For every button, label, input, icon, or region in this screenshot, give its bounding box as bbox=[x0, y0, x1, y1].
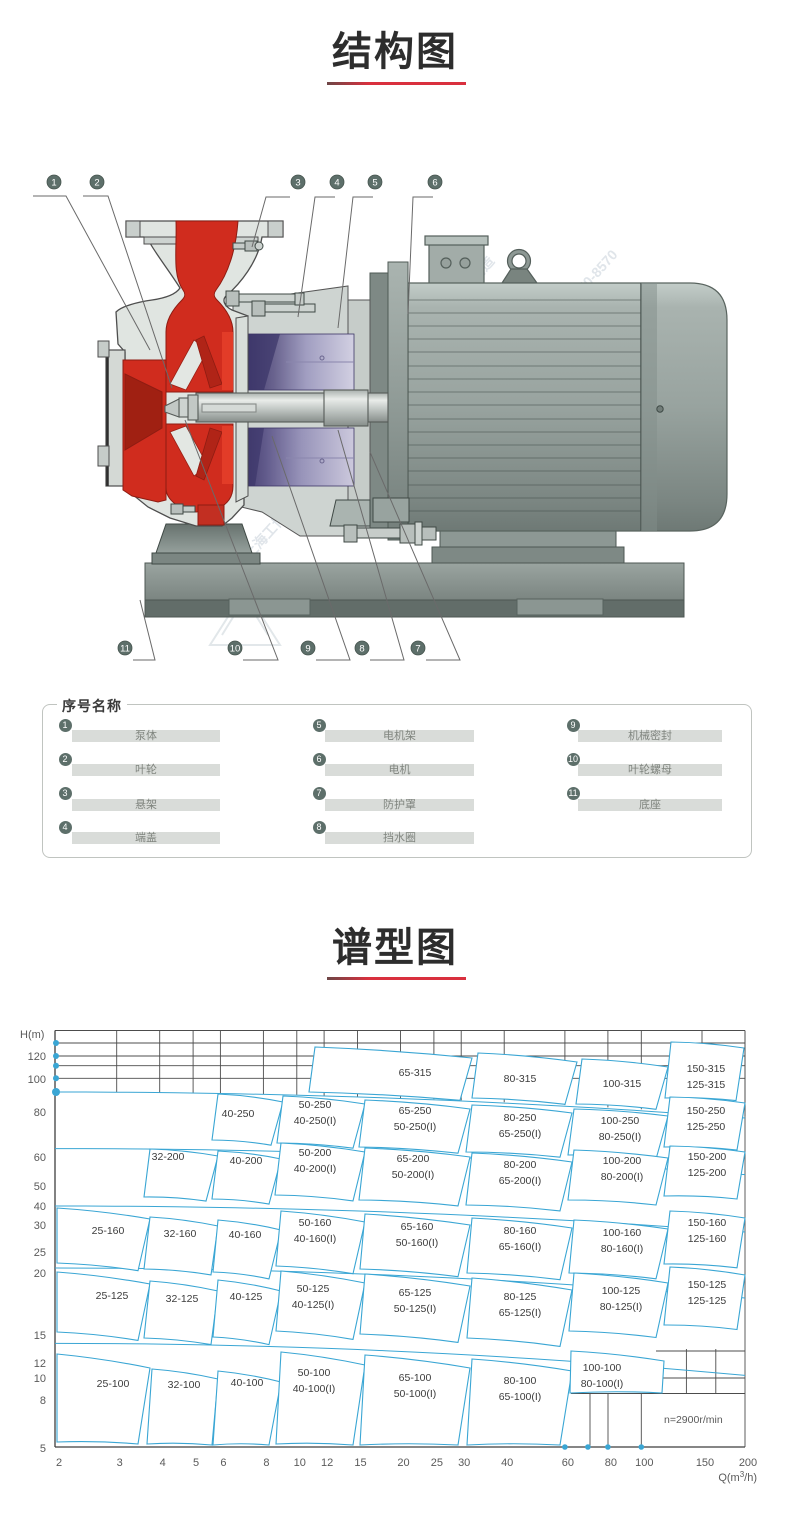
svg-text:120: 120 bbox=[28, 1051, 46, 1063]
svg-text:8: 8 bbox=[263, 1457, 269, 1469]
svg-text:100-100: 100-100 bbox=[583, 1362, 622, 1374]
svg-text:10: 10 bbox=[34, 1373, 46, 1385]
svg-text:65-315: 65-315 bbox=[399, 1067, 432, 1079]
svg-text:50-250: 50-250 bbox=[299, 1099, 332, 1111]
svg-text:50-250(I): 50-250(I) bbox=[394, 1121, 437, 1133]
svg-text:25-100: 25-100 bbox=[97, 1378, 130, 1390]
svg-text:65-250(I): 65-250(I) bbox=[499, 1128, 542, 1140]
svg-text:8: 8 bbox=[359, 644, 364, 655]
svg-text:3: 3 bbox=[295, 178, 300, 189]
svg-text:150-315: 150-315 bbox=[687, 1063, 726, 1075]
svg-text:10: 10 bbox=[230, 644, 241, 655]
svg-text:20: 20 bbox=[397, 1457, 409, 1469]
svg-text:Q(m3/h): Q(m3/h) bbox=[718, 1470, 757, 1484]
svg-text:30: 30 bbox=[458, 1457, 470, 1469]
svg-text:65-160: 65-160 bbox=[401, 1221, 434, 1233]
svg-text:6: 6 bbox=[220, 1457, 226, 1469]
svg-text:1: 1 bbox=[51, 178, 56, 189]
svg-text:9: 9 bbox=[305, 644, 310, 655]
svg-text:5: 5 bbox=[193, 1457, 199, 1469]
svg-text:8: 8 bbox=[40, 1395, 46, 1407]
svg-text:65-160(I): 65-160(I) bbox=[499, 1241, 542, 1253]
svg-text:65-100(I): 65-100(I) bbox=[499, 1391, 542, 1403]
svg-text:80: 80 bbox=[34, 1107, 46, 1119]
svg-text:n=2900r/min: n=2900r/min bbox=[664, 1414, 723, 1426]
svg-text:12: 12 bbox=[34, 1358, 46, 1370]
svg-text:4: 4 bbox=[334, 178, 339, 189]
svg-text:40-250: 40-250 bbox=[222, 1108, 255, 1120]
svg-text:80-315: 80-315 bbox=[504, 1073, 537, 1085]
svg-text:15: 15 bbox=[34, 1330, 46, 1342]
svg-text:150-125: 150-125 bbox=[688, 1279, 727, 1291]
svg-text:80-200(I): 80-200(I) bbox=[601, 1171, 644, 1183]
svg-text:50-200(I): 50-200(I) bbox=[392, 1169, 435, 1181]
svg-text:40-200: 40-200 bbox=[230, 1155, 263, 1167]
svg-text:40-200(I): 40-200(I) bbox=[294, 1163, 337, 1175]
svg-text:65-125(I): 65-125(I) bbox=[499, 1307, 542, 1319]
svg-text:32-100: 32-100 bbox=[168, 1379, 201, 1391]
svg-text:50-100: 50-100 bbox=[298, 1367, 331, 1379]
svg-text:32-160: 32-160 bbox=[164, 1228, 197, 1240]
svg-text:25-125: 25-125 bbox=[96, 1290, 129, 1302]
svg-text:125-315: 125-315 bbox=[687, 1079, 726, 1091]
svg-text:80-250: 80-250 bbox=[504, 1112, 537, 1124]
svg-text:125-160: 125-160 bbox=[688, 1233, 727, 1245]
svg-text:150: 150 bbox=[696, 1457, 714, 1469]
svg-text:2: 2 bbox=[94, 178, 99, 189]
svg-text:10: 10 bbox=[294, 1457, 306, 1469]
svg-text:150-250: 150-250 bbox=[687, 1105, 726, 1117]
svg-text:11: 11 bbox=[120, 644, 130, 655]
svg-text:125-200: 125-200 bbox=[688, 1167, 727, 1179]
svg-text:50-200: 50-200 bbox=[299, 1147, 332, 1159]
svg-text:65-200: 65-200 bbox=[397, 1153, 430, 1165]
svg-text:40: 40 bbox=[501, 1457, 513, 1469]
svg-text:25: 25 bbox=[431, 1457, 443, 1469]
svg-text:40-100(I): 40-100(I) bbox=[293, 1383, 336, 1395]
svg-text:50-125: 50-125 bbox=[297, 1283, 330, 1295]
svg-text:25: 25 bbox=[34, 1247, 46, 1259]
svg-text:40-125: 40-125 bbox=[230, 1291, 263, 1303]
svg-text:H(m): H(m) bbox=[20, 1029, 44, 1041]
svg-text:100-160: 100-160 bbox=[603, 1227, 642, 1239]
svg-text:100: 100 bbox=[28, 1074, 46, 1086]
svg-text:80-125: 80-125 bbox=[504, 1291, 537, 1303]
svg-text:40-100: 40-100 bbox=[231, 1377, 264, 1389]
svg-text:150-200: 150-200 bbox=[688, 1151, 727, 1163]
svg-text:100-125: 100-125 bbox=[602, 1285, 641, 1297]
svg-text:32-200: 32-200 bbox=[152, 1151, 185, 1163]
svg-text:40-160: 40-160 bbox=[229, 1229, 262, 1241]
svg-text:125-250: 125-250 bbox=[687, 1121, 726, 1133]
svg-text:50-160: 50-160 bbox=[299, 1217, 332, 1229]
svg-text:100: 100 bbox=[635, 1457, 653, 1469]
svg-text:3: 3 bbox=[117, 1457, 123, 1469]
svg-text:80-125(I): 80-125(I) bbox=[600, 1301, 643, 1313]
svg-text:40-160(I): 40-160(I) bbox=[294, 1233, 337, 1245]
svg-text:80-160(I): 80-160(I) bbox=[601, 1243, 644, 1255]
svg-text:7: 7 bbox=[415, 644, 420, 655]
svg-text:15: 15 bbox=[354, 1457, 366, 1469]
svg-text:5: 5 bbox=[40, 1443, 46, 1455]
svg-text:100-250: 100-250 bbox=[601, 1115, 640, 1127]
svg-text:65-200(I): 65-200(I) bbox=[499, 1175, 542, 1187]
svg-text:4: 4 bbox=[160, 1457, 166, 1469]
svg-text:80-100(I): 80-100(I) bbox=[581, 1378, 624, 1390]
svg-text:60: 60 bbox=[562, 1457, 574, 1469]
svg-text:125-125: 125-125 bbox=[688, 1295, 727, 1307]
svg-text:80-200: 80-200 bbox=[504, 1159, 537, 1171]
svg-text:65-100: 65-100 bbox=[399, 1372, 432, 1384]
svg-text:50-100(I): 50-100(I) bbox=[394, 1388, 437, 1400]
svg-text:80: 80 bbox=[605, 1457, 617, 1469]
svg-text:6: 6 bbox=[432, 178, 437, 189]
svg-text:65-250: 65-250 bbox=[399, 1105, 432, 1117]
svg-text:12: 12 bbox=[321, 1457, 333, 1469]
svg-text:80-100: 80-100 bbox=[504, 1375, 537, 1387]
svg-text:150-160: 150-160 bbox=[688, 1217, 727, 1229]
svg-text:80-160: 80-160 bbox=[504, 1225, 537, 1237]
svg-text:40: 40 bbox=[34, 1201, 46, 1213]
svg-text:200: 200 bbox=[739, 1457, 757, 1469]
svg-text:30: 30 bbox=[34, 1220, 46, 1232]
svg-text:40-125(I): 40-125(I) bbox=[292, 1299, 335, 1311]
svg-text:60: 60 bbox=[34, 1152, 46, 1164]
svg-text:80-250(I): 80-250(I) bbox=[599, 1131, 642, 1143]
svg-text:50-125(I): 50-125(I) bbox=[394, 1303, 437, 1315]
svg-text:32-125: 32-125 bbox=[166, 1293, 199, 1305]
svg-text:25-160: 25-160 bbox=[92, 1225, 125, 1237]
svg-text:5: 5 bbox=[372, 178, 377, 189]
svg-text:2: 2 bbox=[56, 1457, 62, 1469]
svg-text:20: 20 bbox=[34, 1268, 46, 1280]
svg-text:40-250(I): 40-250(I) bbox=[294, 1115, 337, 1127]
svg-text:50-160(I): 50-160(I) bbox=[396, 1237, 439, 1249]
svg-text:65-125: 65-125 bbox=[399, 1287, 432, 1299]
svg-text:100-200: 100-200 bbox=[603, 1155, 642, 1167]
svg-text:50: 50 bbox=[34, 1181, 46, 1193]
svg-text:100-315: 100-315 bbox=[603, 1078, 642, 1090]
